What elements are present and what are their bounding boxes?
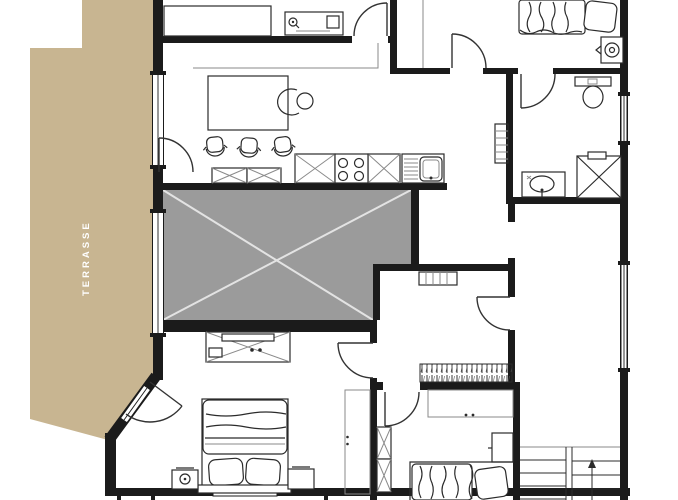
door-bedroom3 [385, 392, 419, 426]
closet [345, 390, 370, 494]
closet [428, 390, 513, 417]
living-dining-area [202, 76, 313, 158]
dining-chair [202, 136, 228, 157]
terrace-label: TERRASSE [81, 220, 92, 296]
dining-chair [236, 137, 261, 158]
window-left-2 [150, 209, 166, 337]
dining-chair [270, 135, 296, 157]
nightstand [172, 468, 198, 489]
door-bathroom [521, 74, 555, 108]
window-right-bedroom [618, 261, 630, 372]
armchair [278, 89, 313, 115]
shower [577, 152, 621, 198]
stove [335, 154, 368, 183]
window-left-1 [150, 71, 166, 169]
dining-table [208, 76, 288, 130]
radiator [419, 272, 457, 285]
wardrobe [164, 6, 271, 36]
door-bedroom1 [338, 343, 373, 378]
monitor-icon [327, 16, 339, 28]
nightstand [288, 467, 314, 489]
kitchen-cabinet [212, 154, 400, 183]
desk [285, 12, 343, 35]
door-top-room [354, 3, 387, 36]
door-top-bedroom [452, 34, 486, 68]
washing-machine-icon [596, 37, 623, 63]
corridor [419, 272, 512, 382]
toilet-icon [575, 77, 611, 108]
pillow [474, 466, 509, 500]
desk [488, 433, 513, 462]
pillow [245, 458, 281, 486]
corridor-wardrobe [420, 364, 512, 382]
window-right-bathroom [618, 92, 630, 145]
bedroom-3 [377, 390, 513, 500]
bathroom [522, 77, 621, 198]
office-room [164, 6, 343, 36]
double-bed [410, 462, 513, 500]
double-bed [198, 399, 291, 493]
double-bed [519, 0, 618, 34]
kitchen-sink [402, 154, 444, 183]
floor-plan: TERRASSE [0, 0, 678, 500]
door-corridor-bedroom2 [477, 297, 510, 330]
pillow [583, 0, 617, 33]
vanity-sink [522, 172, 565, 197]
kitchen [212, 154, 444, 183]
top-bedroom [519, 0, 623, 63]
dresser [206, 332, 290, 362]
pillow [208, 458, 244, 486]
duct-shaft [377, 427, 391, 492]
floor-plan-drawing: TERRASSE [0, 0, 678, 500]
terrace: TERRASSE [30, 0, 153, 440]
